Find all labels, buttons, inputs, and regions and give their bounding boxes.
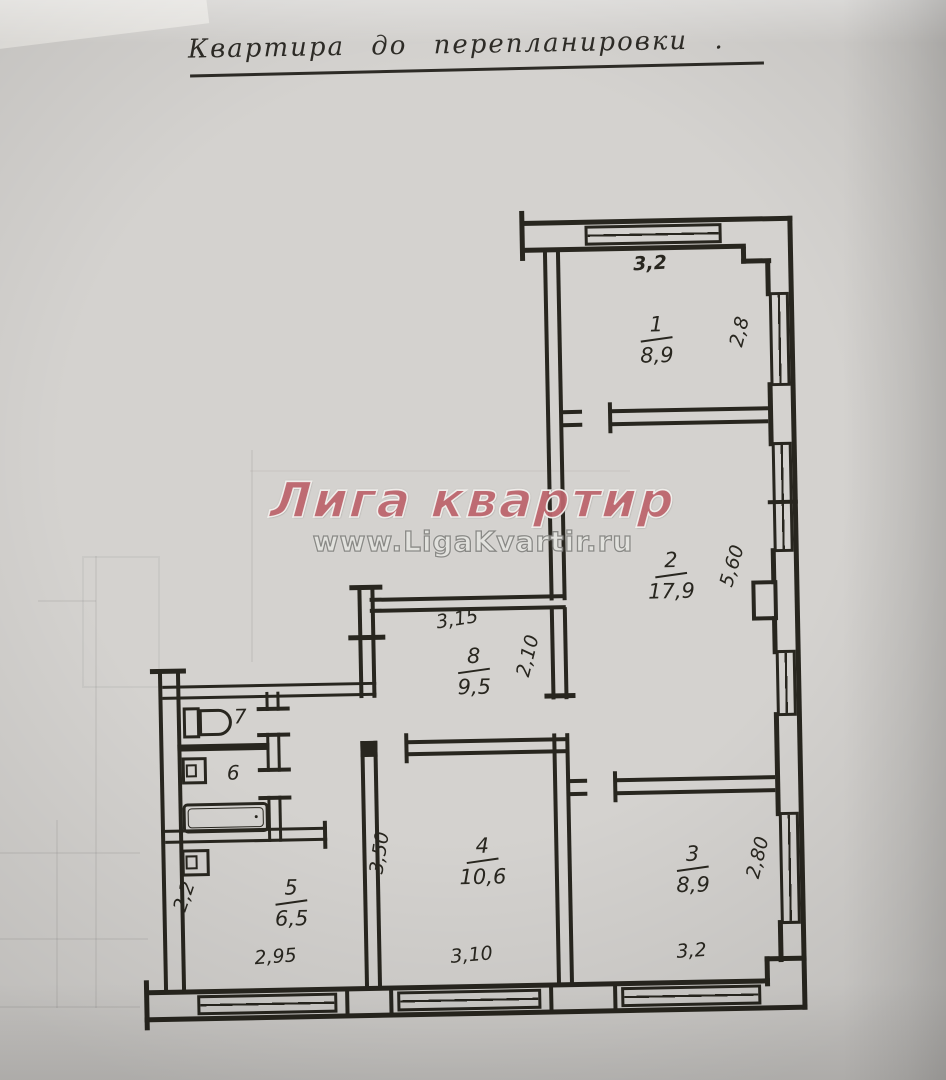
room-number: 4	[450, 833, 514, 858]
room-label-7: 7	[234, 704, 247, 728]
wall-segment	[774, 712, 781, 816]
dim-room1-top: 3,2	[633, 252, 668, 276]
wall-segment	[406, 737, 568, 756]
scanned-floorplan-page: Квартира до перепланировки .	[0, 0, 946, 1080]
room-number: 1	[626, 312, 686, 337]
wall-segment	[550, 607, 569, 699]
wall-notch	[765, 956, 807, 962]
room-label-5: 5 6,5	[259, 875, 324, 931]
wall-segment	[767, 382, 773, 446]
wall-segment	[562, 410, 582, 427]
door-jamb-tick	[257, 706, 290, 711]
fraction-bar	[467, 858, 499, 864]
room-area: 17,9	[639, 579, 703, 604]
fraction-bar	[458, 668, 490, 674]
room-number: 5	[259, 875, 323, 900]
room-number: 2	[639, 548, 703, 573]
window-symbol	[776, 650, 797, 716]
wall-pier	[389, 990, 393, 1014]
wall-segment	[266, 733, 281, 772]
fraction-bar	[655, 572, 687, 578]
door-jamb-tick	[258, 795, 291, 800]
window-symbol	[621, 984, 761, 1007]
room-area: 6,5	[259, 906, 323, 931]
wall-segment	[610, 406, 768, 426]
floor-plan: 1 8,9 2 17,9 3 8,9 4 10,6 5 6,5 8 9,5	[0, 0, 946, 1080]
room-number: 3	[660, 841, 724, 866]
bathtub-drain	[255, 815, 258, 818]
wall-pier	[549, 986, 553, 1010]
wall-segment	[765, 260, 771, 296]
dim-room3-bottom: 3,2	[676, 939, 708, 963]
toilet-tank-icon	[183, 707, 201, 738]
wall-pier	[345, 990, 349, 1014]
window-symbol	[772, 442, 794, 552]
wall-segment	[552, 733, 574, 986]
window-symbol	[397, 989, 541, 1012]
bathtub-inner	[188, 807, 264, 828]
wall-pier	[751, 580, 778, 620]
washbasin-detail	[185, 855, 197, 869]
room-label-1: 1 8,9	[626, 312, 687, 368]
wall-segment	[772, 616, 778, 654]
wall-junction-tick	[768, 500, 798, 505]
room-area: 9,5	[443, 674, 505, 699]
wall-end-cap	[519, 211, 525, 261]
wall-segment	[615, 775, 775, 795]
door-jamb-tick	[258, 767, 291, 772]
fraction-bar	[677, 866, 709, 872]
dim-room4-bottom: 3,10	[450, 942, 494, 968]
door-jamb-tick	[323, 821, 328, 849]
door-jamb-tick	[348, 635, 385, 641]
dim-room2-right: 5,60	[715, 543, 748, 590]
room-label-8: 8 9,5	[442, 643, 505, 699]
fraction-bar	[641, 336, 673, 342]
door-jamb-tick	[257, 732, 290, 737]
room-area: 8,9	[661, 872, 725, 897]
dim-room1-right: 2,8	[725, 314, 754, 349]
wall-segment	[771, 548, 777, 584]
room-label-6: 6	[227, 760, 240, 784]
wall-pier	[613, 985, 617, 1009]
door-jamb-tick	[544, 693, 575, 699]
door-jamb-tick	[613, 771, 618, 802]
wall-segment	[177, 743, 269, 752]
dim-room3-right: 2,80	[742, 834, 774, 880]
dim-room5-bottom: 2,95	[254, 944, 298, 969]
room-area: 8,9	[627, 343, 687, 368]
dim-room8-right: 2,10	[512, 633, 544, 679]
window-symbol	[197, 993, 337, 1016]
window-symbol	[584, 223, 721, 246]
wall-end-cap	[144, 980, 150, 1030]
room-label-3: 3 8,9	[660, 841, 725, 897]
door-jamb-tick	[608, 402, 613, 433]
wall-end-cap	[150, 668, 186, 674]
door-jamb-tick	[404, 733, 409, 763]
room-label-2: 2 17,9	[639, 548, 704, 604]
window-symbol	[779, 812, 801, 924]
fraction-bar	[275, 899, 307, 905]
wall-end-cap	[349, 585, 382, 591]
sink-detail	[186, 764, 197, 777]
toilet-bowl-icon	[199, 709, 233, 737]
wall-segment	[569, 779, 587, 796]
window-symbol	[769, 292, 791, 386]
room-label-4: 4 10,6	[450, 833, 515, 889]
room-number: 8	[442, 643, 504, 668]
room-area: 10,6	[451, 864, 515, 889]
